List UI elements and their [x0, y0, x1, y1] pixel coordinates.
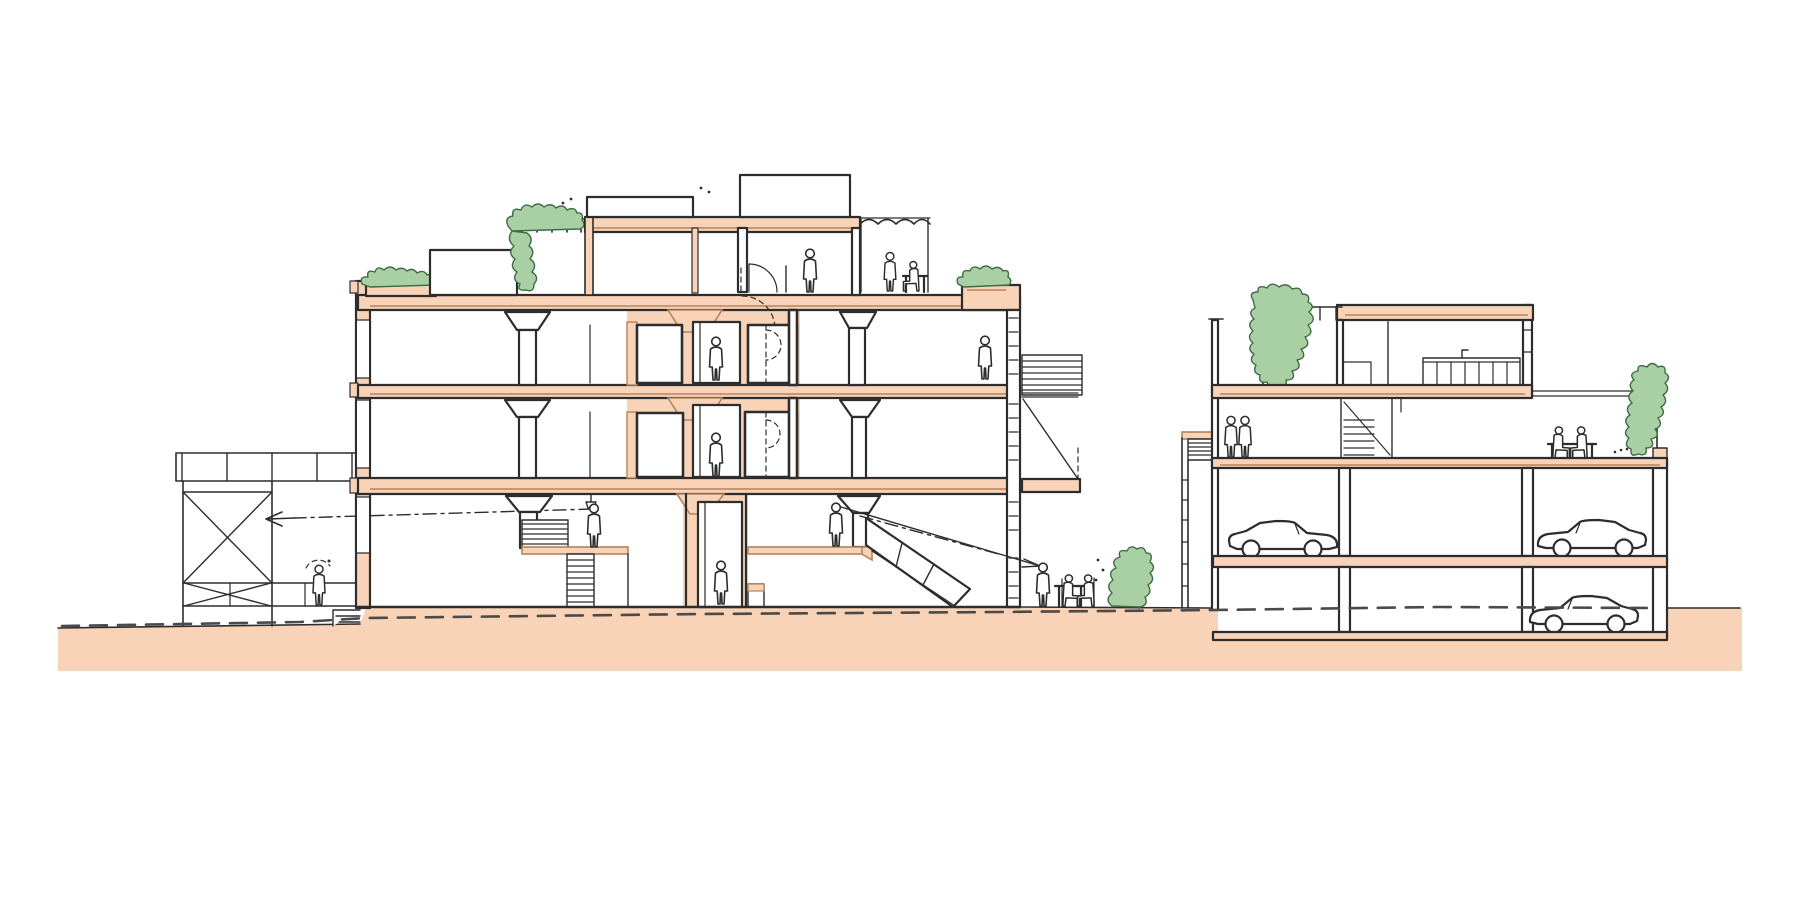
column-shaft [519, 330, 536, 385]
walkway-posts [182, 453, 352, 481]
basement-floor-slab [1213, 632, 1667, 640]
roof-box-tall [740, 175, 850, 217]
penthouse-pier [692, 228, 698, 293]
planter-greenery [361, 267, 437, 287]
chords [183, 492, 358, 606]
figure-awning [884, 252, 896, 291]
trellis-greenery [1626, 364, 1669, 456]
cafe-shrub [1108, 547, 1154, 607]
figure-room-3 [979, 336, 992, 379]
slab-upper [1212, 385, 1532, 398]
lower-stair [567, 554, 594, 607]
penthouse-right-wall [852, 228, 860, 295]
top-floor-kitchen [1337, 320, 1520, 387]
mezzanine-slab [522, 547, 628, 554]
figure-mezzanine-left [588, 504, 601, 547]
roof-tree [1250, 284, 1314, 387]
column-shaft [849, 328, 865, 385]
left-mezzanine [522, 520, 628, 607]
slab-level-3-roof [358, 295, 1020, 310]
core-wall [789, 398, 797, 478]
slab-level-1 [358, 478, 1020, 494]
column [1522, 468, 1533, 556]
hung-balcony-slab [1022, 479, 1080, 492]
column-capital [840, 400, 880, 417]
window-gap [357, 400, 369, 468]
main-posts [183, 481, 272, 626]
window-gap [357, 497, 369, 553]
ground-hall [358, 494, 1040, 608]
balcony-table-group [1548, 427, 1628, 458]
sketch-dot [328, 560, 331, 563]
figure-cafe-standing [1037, 563, 1050, 606]
pergola-greenery [507, 204, 584, 231]
core-panel [637, 325, 682, 383]
core-wall [789, 310, 797, 385]
balcony-cable [1023, 399, 1078, 479]
architectural-section-canvas [0, 0, 1800, 900]
figure-under-scaffold [313, 565, 325, 605]
figure-balcony-1 [1553, 427, 1569, 458]
core-pier [627, 412, 637, 478]
roof-shed [430, 250, 517, 295]
mezzanine-slab [748, 547, 870, 554]
entry-annex [1182, 432, 1213, 608]
roof-slab [1337, 305, 1533, 320]
right-parapet [962, 285, 1020, 310]
second-floor [505, 398, 880, 478]
annex-stair [1188, 439, 1213, 460]
internal-stair [1341, 398, 1392, 458]
figure-balcony-2 [1571, 427, 1587, 458]
view-arrow-left-icon [266, 512, 295, 526]
louvre-box [1022, 355, 1082, 395]
section-drawing [0, 0, 1800, 900]
brace-ties [230, 583, 305, 606]
sight-line-left [295, 509, 592, 518]
main-building [350, 175, 1082, 608]
column-shaft [519, 417, 536, 478]
annex-wall [1182, 438, 1188, 608]
slab-level-2 [358, 385, 1020, 398]
faucet [1462, 350, 1468, 358]
figure-cafe-seated-1 [1063, 575, 1079, 606]
right-service-wall [1007, 310, 1082, 607]
figure-penthouse [804, 249, 817, 292]
column-capital [505, 312, 550, 330]
column-capital [505, 400, 550, 417]
column [1339, 468, 1350, 556]
window-gap [357, 320, 369, 378]
parking-right-wall [1653, 458, 1667, 638]
penthouse-left-pier [585, 217, 593, 295]
right-building [1182, 284, 1669, 640]
parapet-greenery [957, 266, 1011, 287]
figure-pair-2 [1239, 416, 1251, 457]
column-capital [838, 496, 880, 513]
walkway-band [176, 453, 363, 481]
core-pier [627, 322, 637, 385]
slab-parking-roof [1212, 458, 1667, 468]
roof-terrace-left [361, 198, 585, 296]
kitchen-left-wall [1337, 320, 1343, 387]
awning-fabric [860, 220, 930, 225]
column [1339, 567, 1350, 632]
penthouse-wall [738, 228, 747, 292]
roof-box-small [587, 197, 693, 217]
column-capital [506, 496, 552, 512]
x-bracing [184, 493, 271, 606]
courtyard-cafe [1037, 547, 1154, 608]
slab-parking-mid [1213, 556, 1667, 567]
right-mezzanine [748, 547, 872, 560]
figure-mezzanine-right [830, 503, 843, 546]
annex-wall-hatch [1182, 480, 1188, 586]
ground-edge-courtyard [1020, 607, 1213, 608]
column-capital [840, 312, 876, 328]
door-leaf-arc [749, 264, 777, 292]
core-panel [637, 413, 683, 477]
bench-return [1343, 362, 1371, 385]
figure-pair-1 [1225, 416, 1237, 457]
annex-slab [1182, 432, 1213, 439]
left-facade-wall [350, 281, 370, 608]
penthouse-roof-slab [585, 217, 860, 232]
column-shaft [852, 417, 866, 478]
